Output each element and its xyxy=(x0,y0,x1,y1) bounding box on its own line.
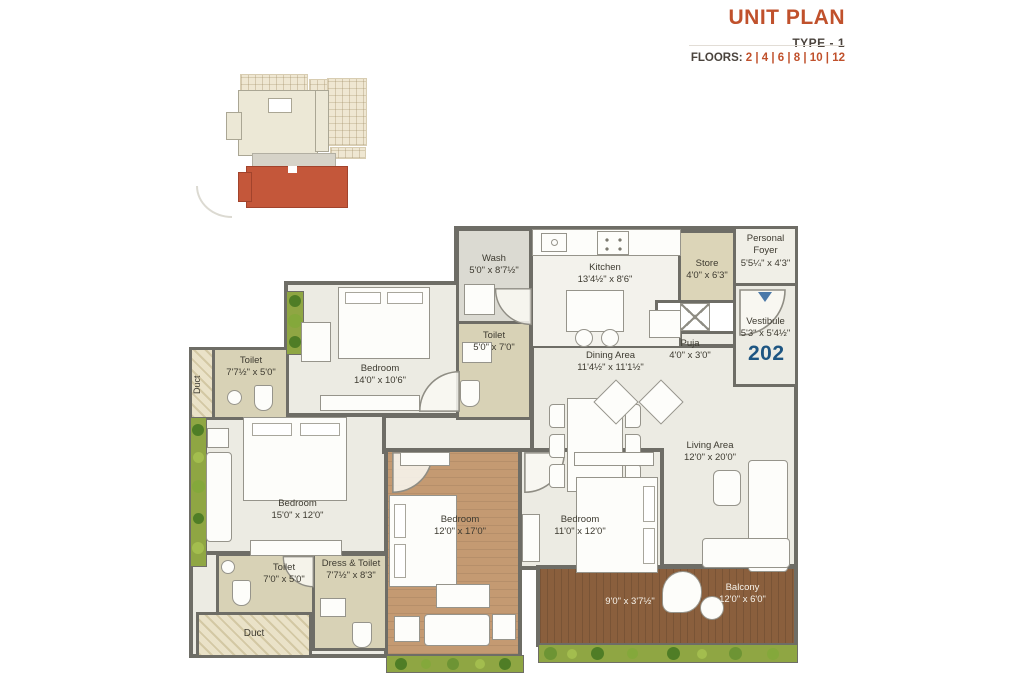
sink-drain-icon xyxy=(551,239,558,246)
room-label-living: Living Area 12'0" x 20'0" xyxy=(650,440,770,465)
site-highlighted-unit-step xyxy=(238,172,252,202)
room-name: Vestibule xyxy=(733,316,798,328)
room-name: Toilet xyxy=(456,330,532,342)
wc-icon xyxy=(352,622,372,648)
room-dims: 11'4½" x 11'1½" xyxy=(553,362,668,374)
room-label-bedroom3: Bedroom 12'0" x 17'0" xyxy=(405,514,515,539)
room-name: Kitchen xyxy=(555,262,655,274)
room-label-toilet3: Toilet 7'0" x 5'0" xyxy=(258,562,310,587)
room-dims: 15'0" x 12'0" xyxy=(240,510,355,522)
room-dims: 12'0" x 6'0" xyxy=(690,594,795,606)
room-dims: 5'0" x 8'7½" xyxy=(456,265,532,277)
armchair-icon xyxy=(301,322,331,362)
wardrobe xyxy=(574,452,654,466)
planter-strip xyxy=(538,644,798,663)
room-name: Bedroom xyxy=(315,363,445,375)
site-building-wing xyxy=(226,112,242,140)
dining-chair xyxy=(549,464,565,488)
room-label-balcony: Balcony 12'0" x 6'0" xyxy=(690,582,795,607)
side-table xyxy=(713,470,741,506)
room-name: Puja xyxy=(640,338,740,350)
room-dims: 4'0" x 6'3" xyxy=(680,270,734,282)
bed xyxy=(389,495,457,587)
side-table xyxy=(207,428,229,448)
room-name: Dining Area xyxy=(553,350,668,362)
room-label-duct-bottom: Duct xyxy=(196,627,312,640)
room-label-kitchen: Kitchen 13'4½" x 8'6" xyxy=(555,262,655,287)
room-label-bedroom1: Bedroom 14'0" x 10'6" xyxy=(315,363,445,388)
room-label-dress-toilet: Dress & Toilet 7'7½" x 8'3" xyxy=(318,558,384,583)
sofa-section xyxy=(424,614,490,646)
bed xyxy=(338,287,430,359)
coffee-table xyxy=(436,584,490,608)
room-label-wash: Wash 5'0" x 8'7½" xyxy=(456,253,532,278)
dining-chair xyxy=(549,404,565,428)
room-label-toilet1: Toilet 7'7½" x 5'0" xyxy=(215,355,287,380)
room-dims: 7'0" x 5'0" xyxy=(258,574,310,586)
room-label-toilet2: Toilet 5'0" x 7'0" xyxy=(456,330,532,355)
room-name: Personal Foyer xyxy=(734,233,797,258)
wc-icon xyxy=(254,385,273,411)
floors-line: FLOORS: 2 | 4 | 6 | 8 | 10 | 12 xyxy=(625,52,845,64)
header: UNIT PLAN TYPE - 1 xyxy=(585,6,845,50)
planter-strip xyxy=(190,417,207,567)
washing-machine-icon xyxy=(464,284,495,315)
floors-label: FLOORS: xyxy=(691,52,743,64)
puja-altar-icon xyxy=(680,303,710,331)
room-dims: 5'3" x 5'4½" xyxy=(733,328,798,340)
header-divider xyxy=(689,45,845,46)
room-label-bedroom4: Bedroom 11'0" x 12'0" xyxy=(525,514,635,539)
refrigerator-icon xyxy=(649,310,681,338)
wash-basin-icon xyxy=(320,598,346,617)
room-dims: 14'0" x 10'6" xyxy=(315,375,445,387)
wardrobe xyxy=(250,540,342,556)
page-title: UNIT PLAN xyxy=(585,6,845,30)
site-unit-notch xyxy=(288,166,297,173)
balcony-left-dims: 9'0" x 3'7½" xyxy=(580,596,680,608)
room-name: Bedroom xyxy=(240,498,355,510)
room-label-store: Store 4'0" x 6'3" xyxy=(680,258,734,283)
door-swing xyxy=(494,288,532,326)
room-name: Living Area xyxy=(650,440,770,452)
planter-strip xyxy=(386,655,524,673)
site-highlighted-unit xyxy=(246,166,348,208)
wash-basin-icon xyxy=(227,390,242,405)
side-table xyxy=(394,616,420,642)
stool-icon xyxy=(601,329,619,347)
room-label-dining: Dining Area 11'4½" x 11'1½" xyxy=(553,350,668,375)
room-dims: 13'4½" x 8'6" xyxy=(555,274,655,286)
wash-basin-icon xyxy=(221,560,235,574)
entry-direction-arrow-icon xyxy=(758,292,772,302)
room-label-vestibule: Vestibule 5'3" x 5'4½" xyxy=(733,316,798,341)
site-road-curve xyxy=(196,186,232,218)
room-name: Bedroom xyxy=(525,514,635,526)
site-building-wing xyxy=(315,90,329,152)
sofa-section xyxy=(206,452,232,542)
dining-chair xyxy=(549,434,565,458)
room-label-bedroom2: Bedroom 15'0" x 12'0" xyxy=(240,498,355,523)
site-roof-hatch xyxy=(327,78,367,146)
floors-values: 2 | 4 | 6 | 8 | 10 | 12 xyxy=(746,52,845,64)
sofa-section xyxy=(702,538,790,568)
room-name: Bedroom xyxy=(405,514,515,526)
stove-icon xyxy=(597,231,629,255)
room-label-duct-left: Duct xyxy=(192,362,210,408)
room-dims: 7'7½" x 8'3" xyxy=(318,570,384,582)
room-label-foyer: Personal Foyer 5'5¼" x 4'3" xyxy=(734,233,797,270)
room-name: Dress & Toilet xyxy=(318,558,384,570)
unit-number: 202 xyxy=(748,342,785,366)
site-building-core xyxy=(268,98,292,113)
stool-icon xyxy=(575,329,593,347)
room-name: Toilet xyxy=(215,355,287,367)
room-dims: 5'5¼" x 4'3" xyxy=(734,258,797,270)
kitchen-island xyxy=(566,290,624,332)
wc-icon xyxy=(232,580,251,606)
unit-plan-sheet: UNIT PLAN TYPE - 1 FLOORS: 2 | 4 | 6 | 8… xyxy=(0,0,1024,682)
wc-icon xyxy=(460,380,480,407)
wardrobe xyxy=(320,395,420,411)
room-name: Toilet xyxy=(258,562,310,574)
room-dims: 12'0" x 20'0" xyxy=(650,452,770,464)
room-name: Balcony xyxy=(690,582,795,594)
side-table xyxy=(492,614,516,640)
room-dims: 7'7½" x 5'0" xyxy=(215,367,287,379)
room-name: Wash xyxy=(456,253,532,265)
room-dims: 11'0" x 12'0" xyxy=(525,526,635,538)
plan-type-label: TYPE - 1 xyxy=(585,36,845,50)
bed xyxy=(243,417,347,501)
wardrobe xyxy=(400,452,450,466)
room-dims: 12'0" x 17'0" xyxy=(405,526,515,538)
room-name: Store xyxy=(680,258,734,270)
room-dims: 5'0" x 7'0" xyxy=(456,342,532,354)
